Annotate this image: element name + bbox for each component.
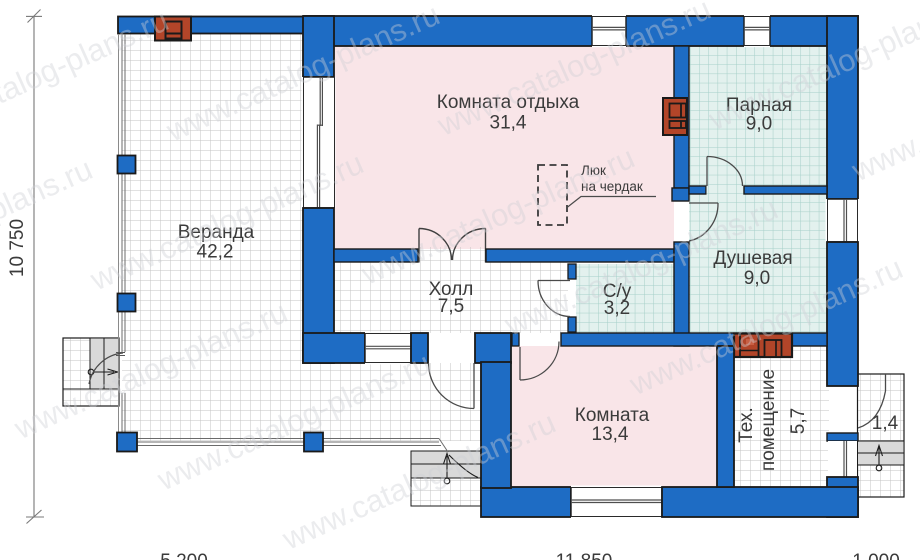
- svg-text:11 850: 11 850: [556, 551, 613, 560]
- svg-text:5 200: 5 200: [160, 551, 208, 560]
- svg-text:9,0: 9,0: [744, 268, 770, 289]
- svg-text:5,7: 5,7: [788, 408, 809, 434]
- svg-text:Комната: Комната: [575, 405, 650, 426]
- svg-text:Душевая: Душевая: [713, 248, 792, 269]
- svg-text:13,4: 13,4: [592, 424, 629, 445]
- svg-text:помещение: помещение: [758, 369, 779, 471]
- svg-text:Тех.: Тех.: [736, 407, 757, 442]
- svg-text:1,4: 1,4: [872, 413, 899, 434]
- svg-text:1 000: 1 000: [852, 551, 900, 560]
- svg-text:7,5: 7,5: [438, 296, 464, 317]
- svg-text:10 750: 10 750: [7, 219, 28, 277]
- svg-text:3,2: 3,2: [604, 298, 630, 319]
